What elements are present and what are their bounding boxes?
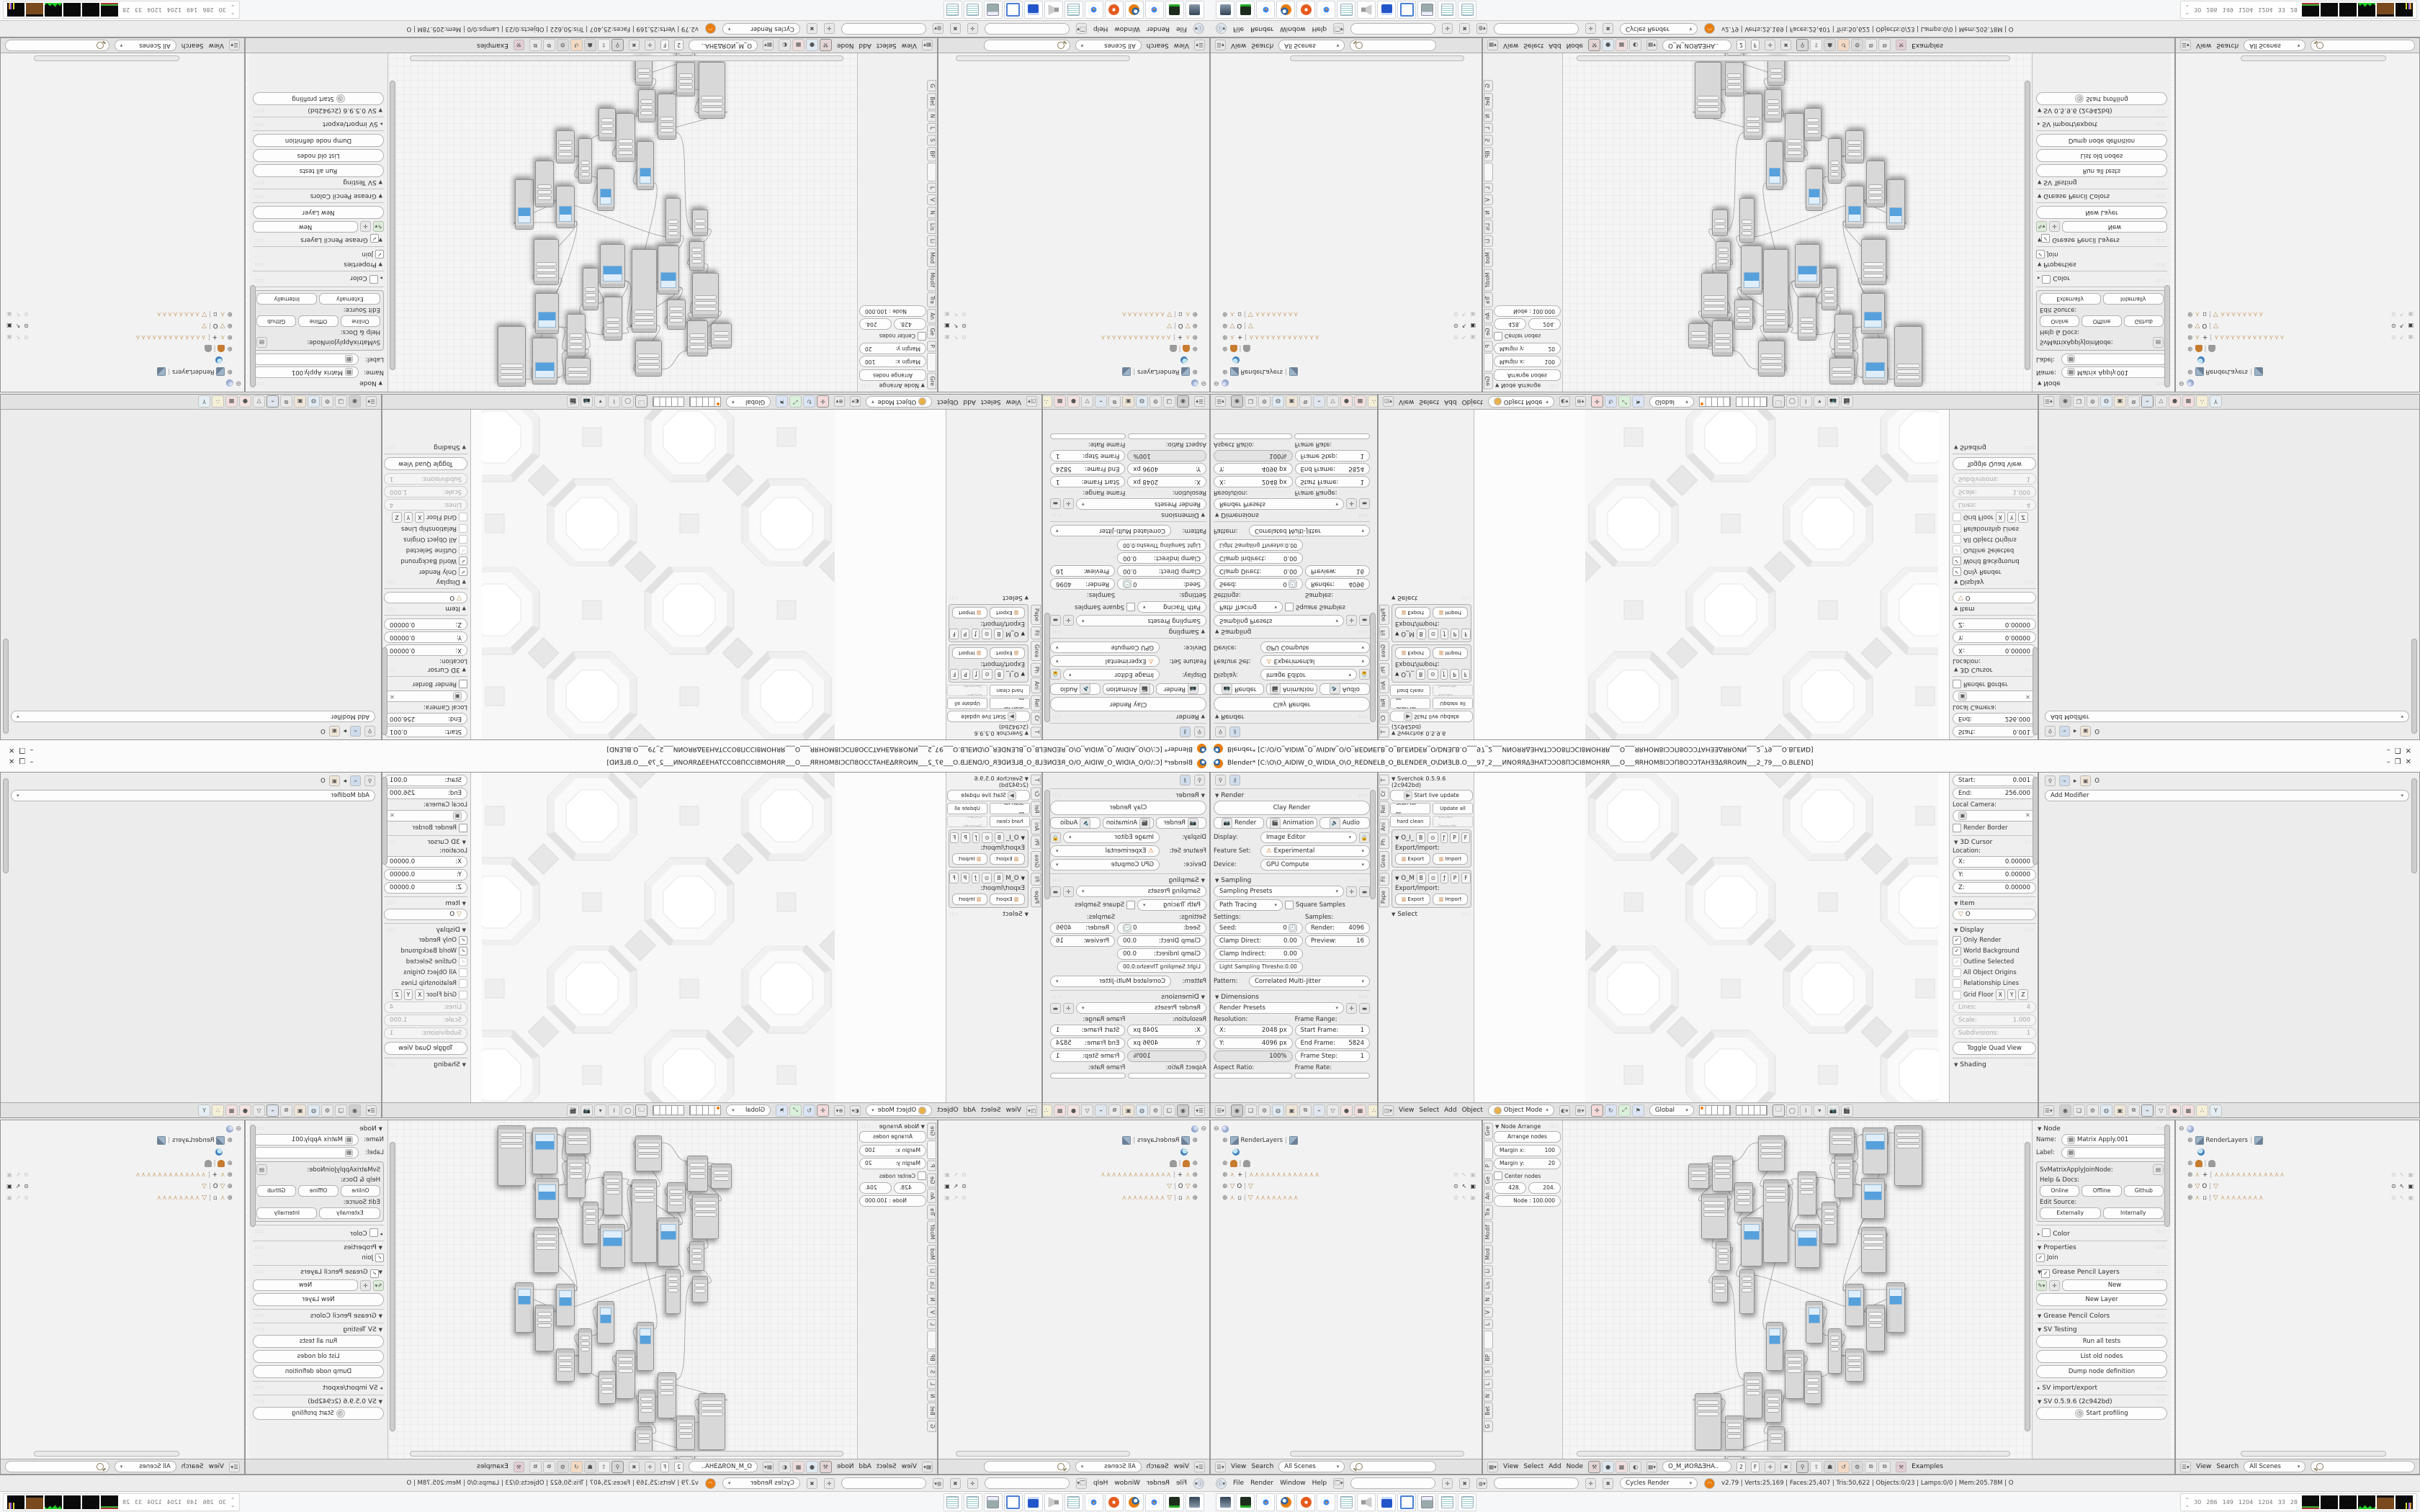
compositing-tree-icon[interactable]: ▦ xyxy=(1615,1461,1628,1473)
grid-scale-field[interactable]: Scale:1.000 xyxy=(384,486,467,498)
add-preset-button[interactable]: ✛ xyxy=(1346,499,1357,510)
toolshelf-tab-S[interactable]: S xyxy=(1484,135,1493,145)
toolshelf-tab-Pape[interactable]: Pape xyxy=(1031,887,1041,907)
translate-manip-icon[interactable]: ✛ xyxy=(1591,1104,1603,1117)
taskbar-imgview-icon[interactable] xyxy=(1397,1493,1416,1511)
toolshelf-tab-Ge[interactable]: Ge xyxy=(1484,325,1493,339)
start-profiling-button[interactable]: ◷Start profiling xyxy=(253,92,384,105)
square-samples-checkbox[interactable] xyxy=(1126,603,1135,611)
render-layers-tab-icon[interactable]: ❏ xyxy=(1163,396,1175,408)
toolshelf-tab-Grea[interactable]: Grea xyxy=(1031,851,1041,871)
tray-chevron-icon[interactable]: ⌃⌄ xyxy=(2184,1498,2190,1508)
device-dropdown[interactable]: GPU Compute▾ xyxy=(1260,642,1370,653)
renderability-icon[interactable]: ▣ xyxy=(944,311,950,318)
taskbar-spiral-icon[interactable] xyxy=(1105,1,1124,19)
sverchok-node[interactable] xyxy=(1765,89,1782,122)
all-object-origins-checkbox[interactable] xyxy=(1953,535,1961,544)
remove-preset-button[interactable]: ▬ xyxy=(1359,886,1370,897)
selectability-icon[interactable]: ↖ xyxy=(2400,323,2405,329)
toolshelf-tab-L[interactable]: L xyxy=(1484,123,1493,133)
sverchok-node[interactable] xyxy=(565,358,591,384)
tray-graph-tile[interactable] xyxy=(2302,1495,2319,1509)
selectability-icon[interactable]: ↖ xyxy=(954,1171,959,1178)
texture-tab-icon[interactable]: ▦ xyxy=(1354,1104,1366,1117)
editor-type-icon[interactable]: ☰▾ xyxy=(1215,1105,1226,1116)
outliner-row[interactable]: ⊕| xyxy=(941,343,1198,354)
circle-icon[interactable]: ◯ xyxy=(1786,396,1798,408)
join-checkbox[interactable] xyxy=(2036,250,2045,258)
resolution-x-field[interactable]: X:2048 px xyxy=(1127,1025,1206,1036)
sverchok-node[interactable] xyxy=(1716,241,1731,271)
modifiers-tab-icon[interactable]: ⌁ xyxy=(1095,1104,1107,1117)
render-border-checkbox[interactable] xyxy=(459,680,467,688)
sampling-panel-header[interactable]: ▼ Sampling:::: xyxy=(1052,877,1205,884)
properties-header[interactable]: ☰▾ ◉❏⚙◍▣⧉⌁▽●▦∴Y xyxy=(2039,395,2419,410)
outliner-row[interactable]: ⊕⋏▫|▽⋏⋏⋏⋏⋏⋏⋏⋏⊙↖▣ xyxy=(941,1192,1198,1203)
animation-button[interactable]: 🎬Animation xyxy=(1266,817,1317,829)
expand-icon[interactable]: ⊕ xyxy=(227,346,233,353)
dimensions-panel-header[interactable]: ▼ Dimensions:::: xyxy=(1052,994,1205,1001)
tray-graph-tile[interactable] xyxy=(2321,3,2338,17)
center-nodes-checkbox[interactable] xyxy=(918,332,926,341)
toolshelf-tab-P[interactable]: P xyxy=(1484,341,1493,351)
render-border-checkbox[interactable] xyxy=(1953,824,1961,832)
visibility-icon[interactable]: ⊙ xyxy=(2391,311,2396,318)
tray-chevron-icon[interactable]: ⌃⌄ xyxy=(230,5,236,15)
seed-field[interactable]: Seed:0🕘 xyxy=(1214,578,1303,590)
sverchok-node[interactable] xyxy=(1821,268,1837,310)
sverchok-node[interactable] xyxy=(498,326,526,387)
expand-icon[interactable]: ⊕ xyxy=(1222,1137,1228,1144)
margin-x-field[interactable]: Margin x:100 xyxy=(859,1145,926,1156)
sverchok-node[interactable] xyxy=(535,1178,559,1219)
toolshelf-tab-blank[interactable] xyxy=(1484,1140,1493,1159)
tool-icon[interactable]: ⚷ xyxy=(1229,775,1240,786)
outliner-row[interactable]: ⊕▽O|▽⊙↖▣ xyxy=(2187,320,2416,331)
expand-icon[interactable]: ⊕ xyxy=(227,323,233,330)
sverchok-node[interactable] xyxy=(687,320,708,356)
toolshelf-tab-Ge[interactable]: Ge xyxy=(1484,1173,1493,1187)
outliner-row[interactable]: ⊕RenderLayers| xyxy=(941,1135,1198,1146)
externally-button[interactable]: Externally xyxy=(2040,1207,2101,1219)
delete-scene-button[interactable]: ✖ xyxy=(1603,24,1613,35)
texture-tree-icon[interactable]: ◐ xyxy=(1629,40,1641,52)
node-label-field[interactable]: ▦ xyxy=(253,1147,359,1158)
toolshelf-tab-Gre[interactable]: Gre xyxy=(927,373,936,390)
toolshelf-tab-L[interactable]: L xyxy=(927,1319,936,1329)
outliner-row[interactable]: ⊕| xyxy=(941,1158,1198,1169)
toolshelf-tab-Li[interactable]: Li xyxy=(1484,235,1493,247)
toolshelf-tab-An[interactable]: An xyxy=(1484,309,1493,323)
sverchok-node[interactable] xyxy=(600,244,625,288)
arrange-nodes-button[interactable]: Arrange nodes xyxy=(859,1131,926,1143)
pattern-dropdown[interactable]: Correlated Multi-Jitter▾ xyxy=(1249,976,1370,987)
import-button[interactable]: ▥Import xyxy=(1433,607,1468,618)
clip-start-field[interactable]: Start:0.001 xyxy=(384,775,467,786)
eye-button[interactable]: ⊙ xyxy=(1428,873,1438,883)
taskbar-spiral-icon[interactable] xyxy=(1296,1493,1315,1511)
add-preset-button[interactable]: ✛ xyxy=(1346,616,1357,626)
toolshelf-tab-Bet[interactable]: Bet xyxy=(927,93,936,109)
toolshelf-tab-L[interactable]: L xyxy=(1484,1379,1493,1389)
list-old-nodes-button[interactable]: List old nodes xyxy=(253,1350,384,1363)
audio-button[interactable]: 🔈Audio xyxy=(1050,817,1101,829)
view-menu[interactable]: View xyxy=(1174,1463,1189,1470)
sverchok-node[interactable] xyxy=(1741,246,1762,294)
select-menu[interactable]: Select xyxy=(877,1463,897,1470)
toolshelf-tab-Grea[interactable]: Grea xyxy=(1379,641,1389,661)
renderability-icon[interactable]: ▣ xyxy=(6,1183,12,1189)
screen-icon[interactable]: 🗔 xyxy=(635,1104,647,1117)
cursor-panel-header[interactable]: ▼ 3D Cursor:::: xyxy=(1954,839,2035,846)
sv-version-panel-header[interactable]: ▼ SV 0.5.9.6 (2c942bd):::: xyxy=(254,1398,382,1405)
selectability-icon[interactable]: ↖ xyxy=(16,1171,21,1178)
taskbar-paper-icon[interactable] xyxy=(1458,1493,1476,1511)
taskbar-monitor-icon[interactable] xyxy=(1216,1,1234,19)
pencil-icon[interactable]: ✎▾ xyxy=(2036,1280,2047,1291)
node-menu[interactable]: Node xyxy=(837,1463,854,1470)
view3d-header[interactable]: ◳▾ View Select Add Object Object Mode▾ ◐… xyxy=(382,395,1041,410)
render-engine-dropdown[interactable]: Cycles Render▾ xyxy=(722,1477,800,1489)
taskbar-chrome-icon[interactable] xyxy=(1085,1,1103,19)
scene-tab-icon[interactable]: ⚙ xyxy=(1149,1104,1162,1117)
unlink-tree-button[interactable]: ✖ xyxy=(629,1462,640,1472)
expand-icon[interactable]: ⊖ xyxy=(236,1125,241,1133)
grid-lines-field[interactable]: Lines:4 xyxy=(384,1002,467,1013)
delete-scene-button[interactable]: ✖ xyxy=(1603,1478,1613,1489)
new-layer-button[interactable]: New Layer xyxy=(2036,206,2167,219)
sverchok-node[interactable] xyxy=(1886,1282,1905,1333)
add-menu[interactable]: Add xyxy=(1549,42,1561,49)
axis-z-button[interactable]: Z xyxy=(2018,989,2027,1000)
github-button[interactable]: Github xyxy=(2124,1185,2164,1197)
arrange-nodes-button[interactable]: Arrange nodes xyxy=(1494,1131,1561,1143)
frame-step-field[interactable]: Frame Step:1 xyxy=(1295,1050,1370,1062)
layout-icon[interactable]: ⚙ xyxy=(1851,40,1863,52)
feature-set-dropdown[interactable]: ⚠Experimental▾ xyxy=(1050,655,1160,667)
orientation-dropdown[interactable]: Global▾ xyxy=(1649,396,1694,408)
search-menu[interactable]: Search xyxy=(1147,42,1169,49)
grid-subdivisions-field[interactable]: Subdivisions:1 xyxy=(1953,473,2036,485)
expand-icon[interactable]: ⊕ xyxy=(1192,1137,1198,1144)
toolshelf-tab-Gre[interactable]: Gre xyxy=(1484,1122,1493,1139)
object-tab-icon[interactable]: ▣ xyxy=(1286,1104,1298,1117)
animation-button[interactable]: 🎬Animation xyxy=(1103,817,1153,829)
clay-render-button[interactable]: Clay Render xyxy=(1214,801,1370,815)
renderability-icon[interactable]: ▣ xyxy=(944,334,950,341)
physics-tab-icon[interactable]: Y xyxy=(198,1104,210,1117)
resolution-percent-field[interactable]: 100% xyxy=(1127,450,1206,462)
renderability-icon[interactable]: ▣ xyxy=(1470,1183,1476,1189)
toolshelf-tab-blank[interactable] xyxy=(1484,1331,1493,1349)
sverchok-tree-icon[interactable]: ⚒ xyxy=(1588,1461,1600,1473)
outliner-row[interactable]: ⊖ xyxy=(2179,1123,2416,1134)
expand-icon[interactable]: ⊖ xyxy=(1214,380,1219,387)
refresh-icon[interactable]: ↺ xyxy=(570,1461,583,1473)
visibility-icon[interactable]: ⊙ xyxy=(962,1194,967,1201)
render-border-checkbox[interactable] xyxy=(1953,680,1961,688)
render-button[interactable]: 📷Render xyxy=(1156,683,1206,695)
samples-render-field[interactable]: Render:4096 xyxy=(1305,922,1370,934)
editor-type-icon[interactable]: ☰▾ xyxy=(366,397,377,408)
search-field[interactable] xyxy=(984,1461,1070,1472)
selectability-icon[interactable]: ↖ xyxy=(1462,323,1467,329)
export-button[interactable]: ▥Export xyxy=(1395,647,1430,659)
color-panel-header[interactable]: ▸ Color:::: xyxy=(254,274,382,284)
lock-icon[interactable]: 🔒 xyxy=(1359,832,1370,843)
editor-type-icon[interactable]: ☰▾ xyxy=(2180,40,2191,51)
internally-button[interactable]: Internally xyxy=(2103,1207,2164,1219)
start-frame-field[interactable]: Start Frame:1 xyxy=(1295,476,1370,487)
select-panel-header[interactable]: ▼ Select:::: xyxy=(1391,911,1471,918)
tray-graph-tile[interactable] xyxy=(26,3,43,17)
add-layout-button[interactable]: ✛ xyxy=(967,1478,978,1489)
resolution-y-field[interactable]: Y:4096 px xyxy=(1214,1038,1293,1049)
pivot-dropdown-icon[interactable]: ⊕▾ xyxy=(834,397,845,408)
outliner-header[interactable]: ☰▾ View Search All Scenes▾ xyxy=(1,1459,244,1474)
sverchok-node[interactable] xyxy=(1866,161,1885,207)
toolshelf-tab-Bet[interactable]: Bet xyxy=(1484,93,1493,109)
sverchok-tree-icon[interactable]: ⚒ xyxy=(1588,40,1600,52)
margin-x-field[interactable]: Margin x:100 xyxy=(1494,1145,1561,1156)
selectability-icon[interactable]: ↖ xyxy=(16,311,21,318)
info-editor-icon[interactable]: ⓘ▾ xyxy=(1193,1478,1204,1489)
toolshelf-tab-blank[interactable] xyxy=(927,353,936,372)
axis-z-button[interactable]: Z xyxy=(392,989,401,1000)
add-icon[interactable]: ✛ xyxy=(360,1280,371,1291)
visibility-icon[interactable]: ⊙ xyxy=(24,334,29,341)
sverchok-node[interactable] xyxy=(600,1224,625,1268)
outliner-row[interactable]: ⊕RenderLayers| xyxy=(1222,1135,1479,1146)
node-arrange-panel-header[interactable]: ▼ Node Arrange:::: xyxy=(861,382,925,389)
node-name-field[interactable]: ▦Matrix Apply.001 xyxy=(253,1134,359,1146)
light-sampling-threshold-field[interactable]: Light Sampling Thresho:0.00 xyxy=(1117,539,1206,551)
scene-icon[interactable]: ◍▾ xyxy=(1476,1478,1487,1489)
sverchok-node[interactable] xyxy=(1834,314,1853,356)
toolshelf-tab-Mod[interactable]: Mod xyxy=(927,248,936,267)
toolshelf-tab-S[interactable]: S xyxy=(1484,1367,1493,1377)
visibility-icon[interactable]: ⊙ xyxy=(1453,311,1458,318)
externally-button[interactable]: Externally xyxy=(2040,293,2101,305)
b-button[interactable]: B xyxy=(1417,873,1426,883)
sverchok-node[interactable] xyxy=(604,1171,622,1215)
sverchok-node[interactable] xyxy=(1828,1328,1842,1374)
render-anim-icon[interactable]: 🎬 xyxy=(1841,396,1853,408)
clean-layouts-button[interactable]: Clean layouts xyxy=(1433,685,1473,696)
add-icon[interactable]: ✛ xyxy=(2049,222,2060,233)
render-tab-icon[interactable]: ◉ xyxy=(1177,396,1189,408)
sverchok-node[interactable] xyxy=(1763,249,1788,333)
sv-import-export-panel-header[interactable]: ▸ SV import/export:::: xyxy=(2038,120,2166,127)
selectability-icon[interactable]: ↖ xyxy=(16,323,21,329)
taskbar-calc-icon[interactable] xyxy=(1417,1,1436,19)
display-dropdown[interactable]: Image Editor▾ xyxy=(1260,832,1357,843)
render-tab-icon[interactable]: ◉ xyxy=(349,396,361,408)
add-layout-button[interactable]: ✛ xyxy=(1442,24,1453,35)
expand-icon[interactable]: ⊕ xyxy=(2187,311,2193,318)
particles-tab-icon[interactable]: ∴ xyxy=(2196,396,2208,408)
toolshelf-tab-Grea[interactable]: Grea xyxy=(1379,851,1389,871)
display-panel-header[interactable]: ▼ Display:::: xyxy=(1954,927,2035,934)
sverchok-node[interactable] xyxy=(665,1269,681,1314)
node-editor-header[interactable]: ▦▾ View Select Add Node ⚒●▦◐ ▦▾ O_M_ИOЯΔ… xyxy=(1483,1459,2174,1474)
update-all-button[interactable]: Update all xyxy=(1433,698,1473,709)
renderability-icon[interactable]: ▣ xyxy=(6,311,12,318)
layers-widget-2[interactable] xyxy=(1736,1105,1767,1115)
shading-dropdown-icon[interactable]: ◐▾ xyxy=(850,1105,861,1116)
outliner-row[interactable]: ⊕⋏+|⋏⋏⋏⋏⋏⋏⋏⋏⋏⋏⋏⋏⋏⊙↖▣ xyxy=(1222,1169,1479,1180)
window-menu[interactable]: Window xyxy=(1114,1480,1140,1487)
dimensions-panel-header[interactable]: ▼ Dimensions:::: xyxy=(1215,511,1368,518)
magnet-icon[interactable]: ⌇ xyxy=(1800,1104,1812,1117)
sverchok-node[interactable] xyxy=(1741,1218,1762,1266)
pivot-dropdown-icon[interactable]: ⊕▾ xyxy=(1575,397,1586,408)
sverchok-node[interactable] xyxy=(1861,1227,1886,1273)
outliner-row[interactable]: ⊕| xyxy=(4,1158,233,1169)
toolshelf-tab-N[interactable]: N xyxy=(927,111,936,122)
users-count-button[interactable]: 2 xyxy=(1736,40,1746,51)
sverchok-node[interactable] xyxy=(637,1322,654,1371)
toolshelf-tab-blank[interactable] xyxy=(927,1331,936,1349)
visibility-icon[interactable]: ⊙ xyxy=(2391,334,2396,341)
taskbar-paper-icon[interactable] xyxy=(944,1493,962,1511)
sverchok-node[interactable] xyxy=(658,246,679,294)
refresh-icon[interactable]: ↺ xyxy=(1837,1461,1850,1473)
toolshelf-tab-Pape[interactable]: Pape xyxy=(1379,605,1389,625)
texture-tab-icon[interactable]: ▦ xyxy=(1354,396,1366,408)
sverchok-node[interactable] xyxy=(1739,1269,1754,1314)
resolution-percent-field[interactable]: 100% xyxy=(1214,1050,1293,1062)
pin-icon[interactable]: ⚲ xyxy=(364,775,375,786)
resolution-y-field[interactable]: Y:4096 px xyxy=(1214,463,1293,474)
f-button[interactable]: F xyxy=(950,832,959,843)
item-name-field[interactable]: ▽O xyxy=(1953,909,2036,920)
shader-tree-icon[interactable]: ● xyxy=(1602,1461,1614,1473)
window-titlebar[interactable]: Blender* [C:\O\O_AIDIW_O_WIDIA_O\O_REDNE… xyxy=(0,756,1210,773)
sverchok-node[interactable] xyxy=(667,300,686,330)
clamp-indirect-field[interactable]: Clamp Indirect:0.00 xyxy=(1214,552,1303,564)
resolution-y-field[interactable]: Y:4096 px xyxy=(1127,1038,1206,1049)
particles-tab-icon[interactable]: ∴ xyxy=(1043,1104,1052,1117)
world-tab-icon[interactable]: ◍ xyxy=(1272,1104,1284,1117)
toolshelf-tab-G[interactable]: G xyxy=(1484,1421,1493,1432)
texture-tab-icon[interactable]: ▦ xyxy=(225,396,238,408)
renderability-icon[interactable]: ▣ xyxy=(1470,334,1476,341)
clamp-indirect-field[interactable]: Clamp Indirect:0.00 xyxy=(1214,948,1303,960)
clean-layouts-button[interactable]: Clean layouts xyxy=(947,685,987,696)
sverchok-node[interactable] xyxy=(1863,338,1888,384)
renderability-icon[interactable]: ▣ xyxy=(1470,1171,1476,1178)
sverchok-node[interactable] xyxy=(1695,1393,1721,1450)
outliner-row[interactable] xyxy=(1232,355,1479,366)
physics-tab-icon[interactable]: Y xyxy=(2210,1104,2222,1117)
scene-name-field[interactable] xyxy=(1494,1477,1579,1489)
new-button[interactable]: New xyxy=(253,1279,358,1291)
users-count-button[interactable]: 2 xyxy=(1736,1462,1746,1472)
cursor-y-field[interactable]: Y:0.00000 xyxy=(384,631,467,643)
outliner-row[interactable]: ⊖ xyxy=(2179,378,2416,389)
visibility-icon[interactable]: ⊙ xyxy=(2391,1194,2396,1201)
toolshelf-tab-Rel[interactable]: Rel xyxy=(1379,801,1389,817)
github-button[interactable]: Github xyxy=(256,1185,296,1197)
circle-icon[interactable]: ◯ xyxy=(622,396,634,408)
sverchok-node[interactable] xyxy=(1866,1305,1885,1351)
render-tab-icon[interactable]: ◉ xyxy=(1231,396,1243,408)
all-object-origins-checkbox[interactable] xyxy=(1953,968,1961,977)
hard-clean-button[interactable]: hard clean xyxy=(1390,816,1430,827)
eye-button[interactable]: ⊙ xyxy=(1428,669,1438,680)
refresh-icon[interactable]: ↺ xyxy=(570,40,583,52)
sverchok-node[interactable] xyxy=(1758,341,1785,377)
magnet-icon[interactable]: ⌇ xyxy=(608,396,620,408)
tray-chevron-icon[interactable]: ⌃⌄ xyxy=(2184,5,2190,15)
expand-icon[interactable]: ⊕ xyxy=(1192,1183,1198,1190)
export-button[interactable]: ▥Export xyxy=(990,894,1025,905)
wrench-icon[interactable]: ⌁ xyxy=(2059,775,2070,786)
outliner-row[interactable] xyxy=(941,355,1188,366)
y-pos-field[interactable]: 204. xyxy=(1528,318,1561,330)
properties-header[interactable]: ☰▾ ◉❏⚙◍▣⧉⌁▽●▦∴Y xyxy=(1043,395,1209,410)
renderability-icon[interactable]: ▣ xyxy=(1470,323,1476,329)
editor-type-icon[interactable]: ▦▾ xyxy=(1487,1462,1498,1472)
lock-icon[interactable]: 🔒 xyxy=(1050,670,1061,680)
outliner-row[interactable] xyxy=(2197,355,2416,366)
f-curve-button[interactable]: ƒ xyxy=(1440,669,1448,680)
sverchok-node[interactable] xyxy=(1758,1135,1785,1171)
outliner-row[interactable] xyxy=(4,1146,223,1157)
modifiers-tab-icon[interactable]: ⌁ xyxy=(2141,396,2154,408)
outliner-row[interactable]: ⊕▽O|▽⊙↖▣ xyxy=(941,1181,1198,1192)
sverchok-node[interactable] xyxy=(597,168,614,211)
x-pos-field[interactable]: 428. xyxy=(1494,1182,1526,1194)
screen-layout-field[interactable] xyxy=(985,23,1070,35)
sverchok-node[interactable] xyxy=(1798,297,1816,341)
internally-button[interactable]: Internally xyxy=(256,1207,318,1219)
toolshelf-tab-N[interactable]: N xyxy=(1484,1294,1493,1305)
sverchok-node[interactable] xyxy=(1701,1194,1728,1239)
dump-node-definition-button[interactable]: Dump node definition xyxy=(253,134,384,147)
sverchok-node[interactable] xyxy=(1766,141,1783,190)
square-samples-checkbox[interactable] xyxy=(1285,901,1294,909)
resolution-x-field[interactable]: X:2048 px xyxy=(1214,1025,1293,1036)
toolshelf-tab-BP[interactable]: BP xyxy=(927,147,936,161)
editor-type-icon[interactable]: ☰▾ xyxy=(2180,1462,2191,1472)
layout-icon[interactable]: ⚙ xyxy=(557,40,569,52)
viewport[interactable] xyxy=(1474,773,1949,1104)
screen-layout-icon[interactable]: 🗔▾ xyxy=(1333,1478,1344,1489)
toolshelf-tab-Pape[interactable]: Pape xyxy=(1379,887,1389,907)
examples-menu[interactable]: Examples xyxy=(1912,42,1943,49)
selectability-icon[interactable]: ↖ xyxy=(954,334,959,341)
toolshelf-tab-N[interactable]: N xyxy=(1484,207,1493,218)
f-button[interactable]: F xyxy=(949,873,958,883)
f-button[interactable]: F xyxy=(1461,629,1470,639)
taskbar-calc-icon[interactable] xyxy=(984,1493,1003,1511)
start-live-update-button[interactable]: ▶Start live update xyxy=(947,790,1030,801)
outliner-header[interactable]: ☰▾ View Search All Scenes▾ xyxy=(2176,38,2419,53)
particles-tab-icon[interactable]: ∴ xyxy=(212,396,224,408)
delete-scene-button[interactable]: ✖ xyxy=(807,24,817,35)
view-menu[interactable]: View xyxy=(2196,42,2211,49)
outliner-row[interactable]: ⊕RenderLayers| xyxy=(4,1135,233,1146)
outliner-row[interactable]: ⊕⋏▫|▽⋏⋏⋏⋏⋏⋏⋏⋏⊙↖▣ xyxy=(2187,309,2416,320)
add-modifier-dropdown[interactable]: Add Modifier▾ xyxy=(11,711,375,722)
select-menu[interactable]: Select xyxy=(1523,42,1543,49)
screen-icon[interactable]: 🗔 xyxy=(635,396,647,408)
selectability-icon[interactable]: ↖ xyxy=(2400,311,2405,318)
visibility-icon[interactable]: ⊙ xyxy=(1453,323,1458,329)
render-anim-icon[interactable]: 🎬 xyxy=(1841,1104,1853,1117)
